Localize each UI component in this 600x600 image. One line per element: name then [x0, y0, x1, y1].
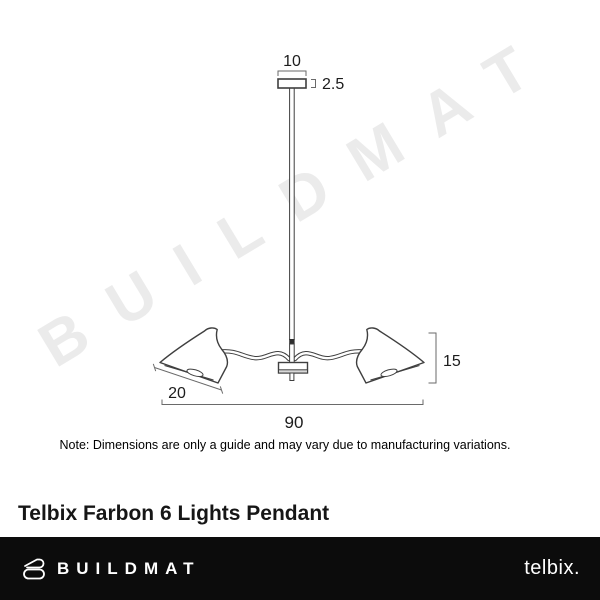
product-title: Telbix Farbon 6 Lights Pendant: [18, 502, 329, 526]
body-height-label: 15: [443, 353, 461, 370]
dimension-body-height: 15: [429, 333, 461, 383]
central-hub: [279, 363, 308, 381]
shade-width-label: 20: [168, 385, 186, 402]
dimension-overall-width: 90: [162, 400, 423, 433]
canopy-height-label: 2.5: [322, 76, 344, 93]
footer-bar: BUILDMAT telbix.: [0, 537, 600, 600]
ceiling-canopy: [278, 79, 306, 88]
dimension-note: Note: Dimensions are only a guide and ma…: [0, 438, 570, 452]
buildmat-logo-text: BUILDMAT: [57, 559, 201, 579]
rod-joint: [289, 339, 294, 344]
pendant-dimension-drawing: 10 2.5 20 15 90: [0, 0, 600, 470]
dimension-canopy-width: 10: [278, 53, 306, 76]
suspension-rod-lower: [290, 344, 295, 364]
telbix-logo: telbix.: [524, 557, 580, 580]
buildmat-logo-icon: [20, 556, 48, 582]
right-arm: [295, 351, 364, 359]
left-lamp-shade: [160, 328, 228, 383]
right-lamp-shade: [356, 328, 424, 383]
canopy-width-label: 10: [283, 53, 301, 70]
suspension-rod: [290, 88, 295, 340]
left-arm: [221, 351, 290, 359]
overall-width-label: 90: [285, 413, 304, 432]
dimension-canopy-height: 2.5: [311, 76, 344, 93]
buildmat-logo: BUILDMAT: [20, 556, 201, 582]
